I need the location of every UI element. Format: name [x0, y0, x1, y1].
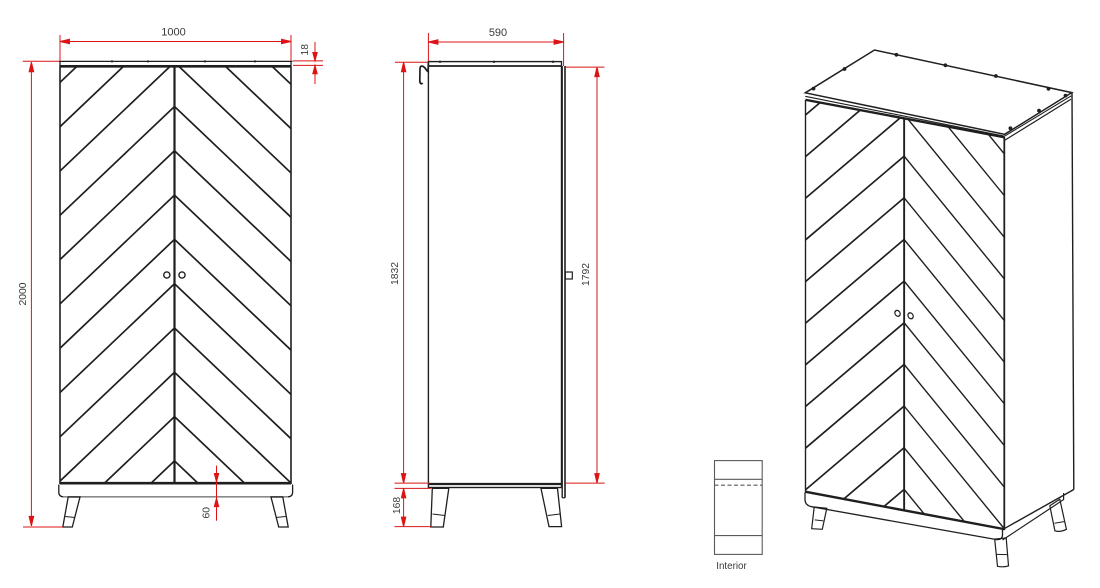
svg-text:168: 168: [392, 497, 403, 514]
svg-text:1792: 1792: [581, 263, 592, 286]
svg-text:18: 18: [300, 44, 311, 56]
svg-text:1832: 1832: [390, 262, 401, 285]
svg-text:2000: 2000: [18, 282, 29, 305]
svg-text:1000: 1000: [161, 26, 185, 38]
svg-text:Interior: Interior: [716, 561, 747, 572]
svg-text:60: 60: [202, 507, 213, 519]
svg-text:590: 590: [489, 27, 507, 39]
